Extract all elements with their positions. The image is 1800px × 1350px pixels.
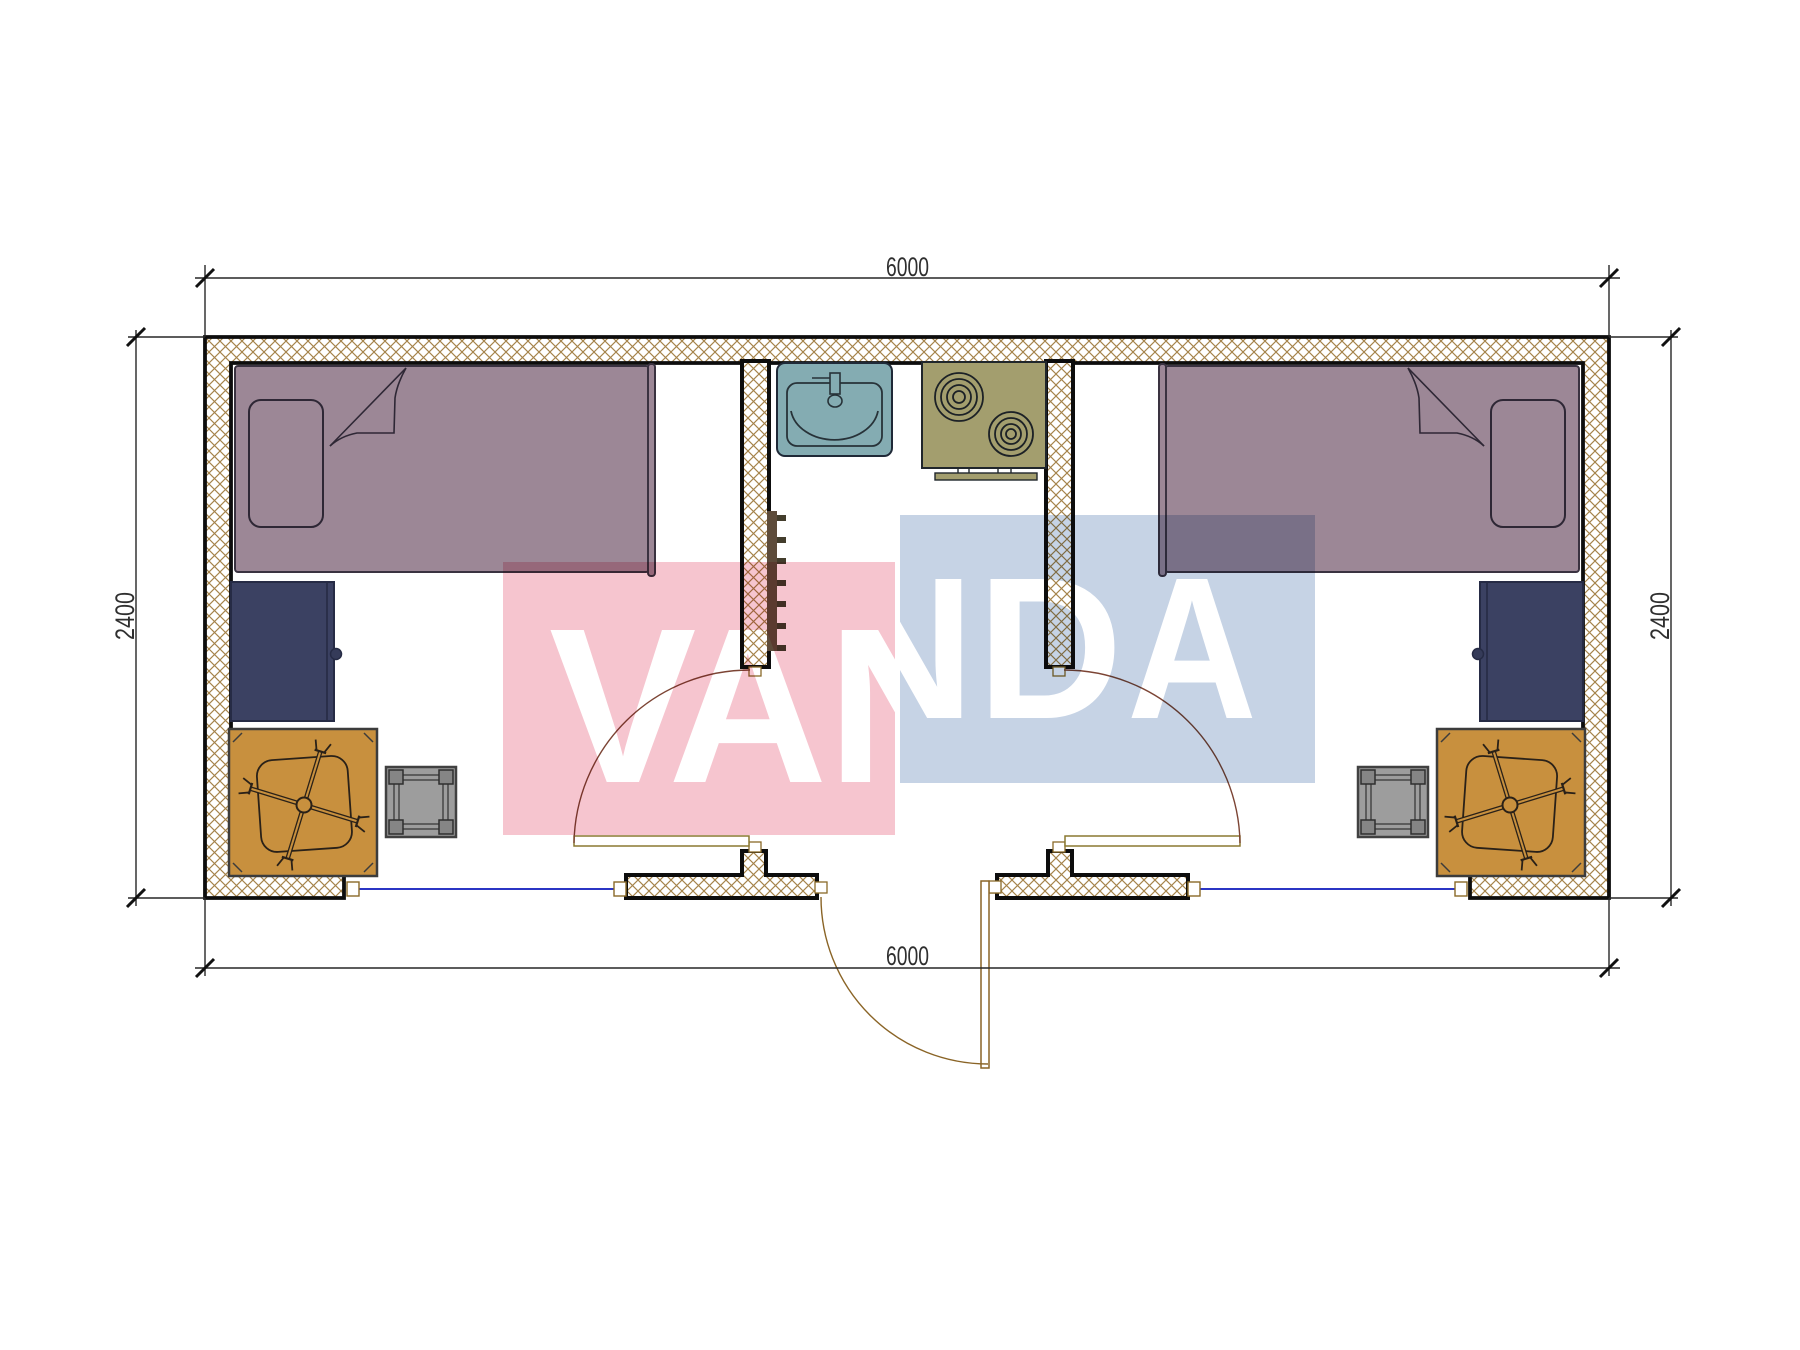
svg-text:D: D (977, 535, 1123, 761)
svg-text:A: A (668, 582, 828, 829)
svg-text:A: A (1127, 535, 1257, 761)
